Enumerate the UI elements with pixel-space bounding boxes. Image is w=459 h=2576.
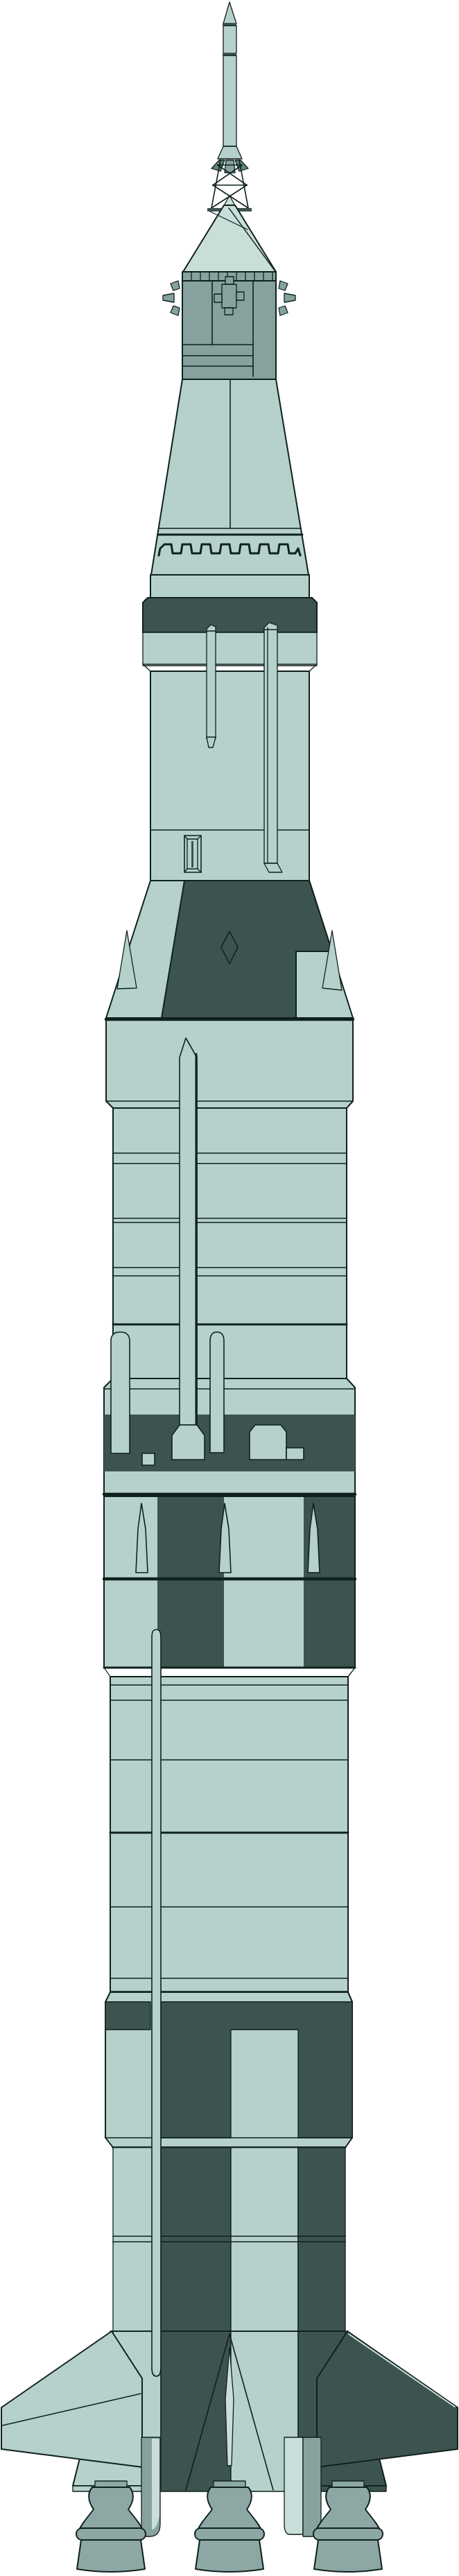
fins-and-engines (1, 2331, 458, 2572)
s-ic-dark-collar (105, 1992, 352, 2147)
base-roll-pattern (113, 2147, 345, 2331)
interstage-checkerboard (104, 1496, 355, 1677)
fin-left (1, 2331, 142, 2467)
launch-escape-motor (211, 2, 248, 173)
service-module (163, 277, 295, 379)
fin-right (317, 2331, 458, 2467)
pod-foot-right (250, 1425, 286, 1460)
command-module (183, 205, 276, 272)
hidden-engine-left (141, 2437, 160, 2536)
s-ii-second-stage (104, 1018, 355, 1494)
instrument-unit-band (143, 598, 317, 632)
tunnel-foot (172, 1425, 205, 1460)
cable-tunnel-left (207, 625, 216, 747)
hidden-engine-right (284, 2437, 321, 2536)
saturn-v-drawing (0, 0, 459, 2576)
s-ivb-third-stage (106, 575, 353, 1018)
pod-foot-small (142, 1453, 155, 1465)
f1-engine-right (313, 2481, 383, 2572)
f1-engine-center (195, 2481, 264, 2572)
ullage-pod-left (111, 1332, 130, 1453)
rcs-quad-left (163, 281, 180, 315)
ullage-pod-center (210, 1332, 224, 1453)
lox-tunnel (152, 1630, 161, 2376)
rocket-illustration (0, 0, 459, 2576)
f1-engine-left (76, 2481, 146, 2572)
rcs-quad-right (279, 281, 295, 315)
spacecraft-lm-adapter (151, 379, 309, 575)
aps-protuberance (184, 836, 201, 872)
